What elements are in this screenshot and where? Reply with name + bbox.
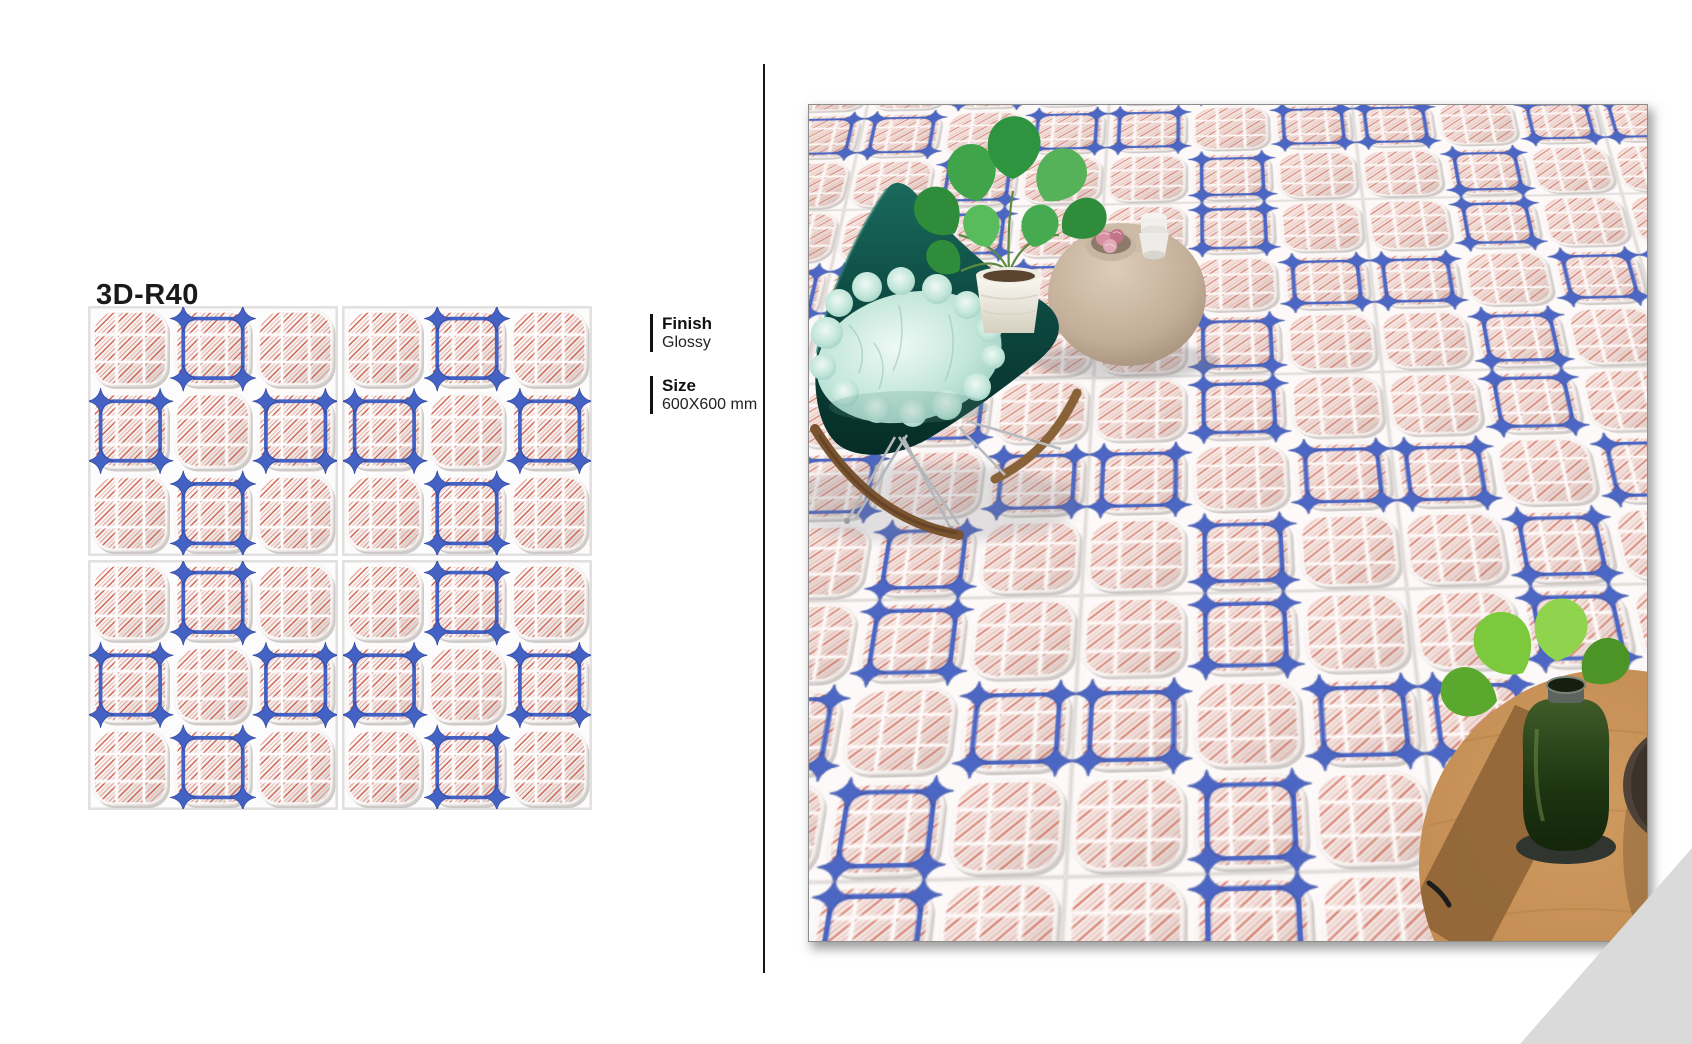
tile-swatch [342, 306, 592, 556]
spec-list: Finish Glossy Size 600X600 mm [650, 314, 757, 438]
spec-finish: Finish Glossy [650, 314, 757, 352]
size-value: 600X600 mm [662, 395, 757, 414]
stacked-cups [1139, 213, 1169, 260]
tile-swatch [342, 560, 592, 810]
spec-tick-bar [650, 314, 653, 352]
finish-label: Finish [662, 314, 712, 333]
finish-value: Glossy [662, 333, 712, 352]
tile-swatch [88, 306, 338, 556]
room-scene-photo [808, 104, 1648, 942]
spec-size: Size 600X600 mm [650, 376, 757, 414]
plant-pot [976, 267, 1042, 333]
rocker-skid [995, 393, 1077, 479]
scene-objects [809, 105, 1647, 941]
tile-swatch-grid [88, 306, 590, 808]
catalog-page: 3D-R40 Finish Glossy Size 600X600 mm [0, 0, 1692, 1044]
size-label: Size [662, 376, 757, 395]
spec-tick-bar [650, 376, 653, 414]
vertical-divider [763, 64, 765, 973]
tile-swatch [88, 560, 338, 810]
